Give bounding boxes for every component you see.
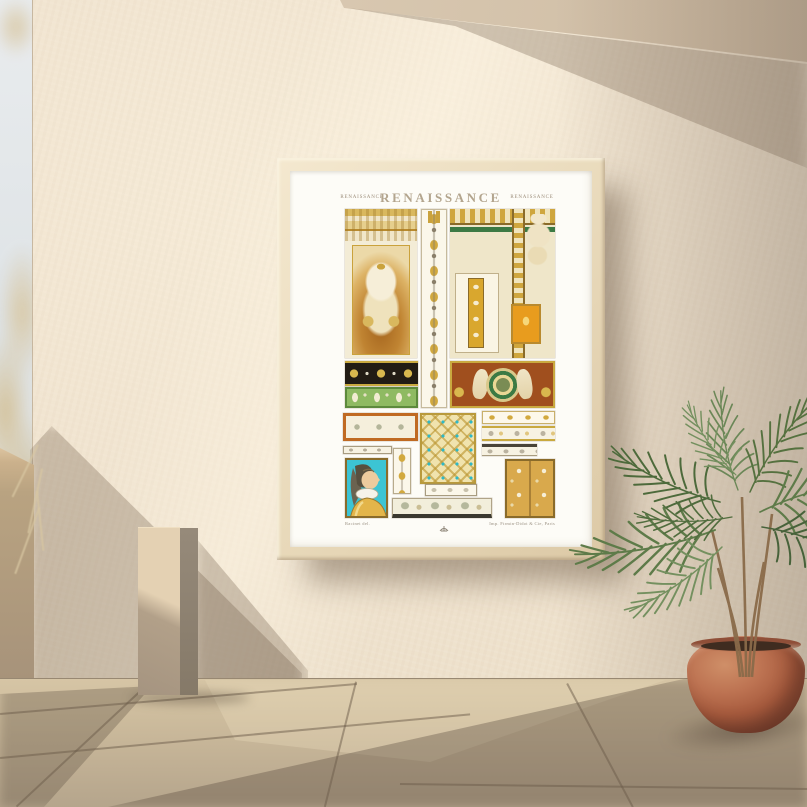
strip-scroll-grey [482,444,537,456]
panel-coffer-figure [450,209,555,358]
frieze-thin-gold [482,411,555,424]
poster-paper: RENAISSANCE RENAISSANCE RENAISSANCE [290,171,592,547]
palm-fronds [567,384,807,632]
frieze-mermaids [450,361,555,408]
picture-frame: RENAISSANCE RENAISSANCE RENAISSANCE [277,158,605,560]
panel-floral-gold [505,459,555,518]
ornament-orange-cartouche [511,304,541,344]
panel-portrait-lady [345,458,388,518]
frieze-bottom-scroll [392,498,492,518]
panel-pilaster-urn [345,209,417,358]
ornament-gold-pilaster [468,278,484,348]
band-leaf-green [345,387,418,408]
ornament-cartouche [358,262,404,338]
credit-artist: Racinet del. [345,521,370,526]
band-shell-black [345,361,418,386]
seated-figure [525,214,552,270]
ornament-balusters [425,211,443,223]
palm-plant [560,372,807,682]
strip-scroll-small [343,446,392,454]
ornament-niche [352,245,410,355]
pedestal-side-face [180,528,198,695]
strip-knot [393,448,411,494]
palm-stems [712,497,772,677]
ornament-entablature [345,209,417,241]
frieze-mini-scroll [425,484,477,496]
panel-candelabra-strip [421,209,447,408]
frieze-thin-scroll [482,426,555,441]
credit-printer: Imp. Firmin-Didot & Cie, Paris [489,521,555,526]
frieze-scroll-orange [343,413,418,441]
pedestal [138,527,198,695]
ornament-subpanel [455,273,499,353]
poster-subtitle-right: RENAISSANCE [510,195,553,200]
pedestal-front-face [138,527,180,695]
printer-mark-icon [438,524,450,534]
gallery-wall-scene: RENAISSANCE RENAISSANCE RENAISSANCE [0,0,807,807]
mermaid-figure-right [515,368,534,400]
portrait-lady-illustration [347,460,388,518]
laurel-medallion [486,368,520,402]
panel-lattice [420,413,476,484]
